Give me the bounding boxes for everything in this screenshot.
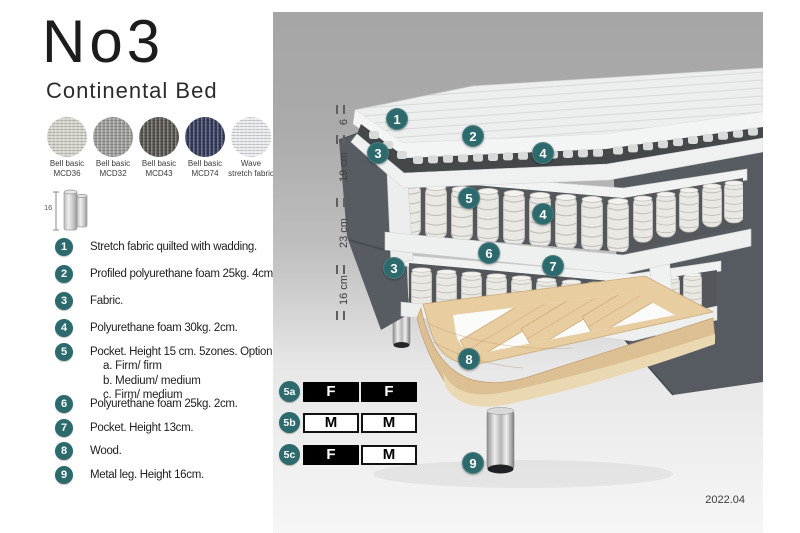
diagram-callout-4: 4 <box>532 142 554 164</box>
swatch-label: Bell basic MCD36 <box>43 159 91 178</box>
product-title: No3 <box>42 10 164 73</box>
firmness-row-5c: 5c F M <box>279 444 417 465</box>
firmness-cell: F <box>303 382 359 402</box>
fabric-swatch <box>185 117 225 157</box>
dimension-tick <box>336 311 338 320</box>
swatch-label-line: Bell basic <box>43 159 91 169</box>
dimension-label-lower-box: 23 cm <box>338 211 350 255</box>
legend-item: 6 Polyurethane foam 25kg. 2cm. <box>55 395 270 413</box>
page: No3 Continental Bed Bell basic MCD36 Bel… <box>0 0 800 533</box>
firmness-cell: M <box>303 413 359 433</box>
swatch-label-line: Bell basic <box>89 159 137 169</box>
firmness-table: F M <box>303 445 417 465</box>
metal-leg-front <box>487 408 514 474</box>
legend-number-badge: 6 <box>55 395 73 413</box>
legend-number-badge: 4 <box>55 319 73 337</box>
legend-number-badge: 3 <box>55 292 73 310</box>
legend-number-badge: 9 <box>55 466 73 484</box>
swatch-label: Bell basic MCD43 <box>135 159 183 178</box>
dimension-label-leg: 16 cm <box>338 268 350 312</box>
firmness-badge: 5b <box>279 412 300 433</box>
fabric-swatch <box>231 117 271 157</box>
leg-cylinders-icon <box>44 188 100 234</box>
fabric-swatch <box>139 117 179 157</box>
firmness-badge: 5c <box>279 444 300 465</box>
swatch-label-line: Wave <box>227 159 275 169</box>
legend-text: Wood. <box>90 442 122 460</box>
swatch-label-line: stretch fabric <box>227 169 275 179</box>
product-subtitle: Continental Bed <box>46 78 218 104</box>
legend-text: Fabric. <box>90 292 123 310</box>
fabric-swatch <box>93 117 133 157</box>
legend-item: 2 Profiled polyurethane foam 25kg. 4cm. <box>55 265 270 283</box>
dimension-label-middle-box: 19 cm <box>338 145 350 189</box>
diagram-panel: 6 19 cm 23 cm 16 cm 1 2 4 3 5 4 6 3 7 8 … <box>273 12 763 533</box>
diagram-callout-6: 6 <box>478 242 500 264</box>
leg-height-value: 16 <box>44 203 52 212</box>
diagram-callout-3: 3 <box>367 142 389 164</box>
swatch-label-line: Bell basic <box>181 159 229 169</box>
firmness-table: F F <box>303 382 417 402</box>
version-date: 2022.04 <box>705 494 745 506</box>
legend-item: 1 Stretch fabric quilted with wadding. <box>55 238 270 256</box>
legend-text: Polyurethane foam 30kg. 2cm. <box>90 319 238 337</box>
swatch-label: Wave stretch fabric <box>227 159 275 178</box>
legend-number-badge: 5 <box>55 343 73 361</box>
swatch-label-line: MCD43 <box>135 169 183 179</box>
firmness-row-5b: 5b M M <box>279 412 417 433</box>
legend-item: 9 Metal leg. Height 16cm. <box>55 466 270 484</box>
swatch-label-line: MCD74 <box>181 169 229 179</box>
diagram-callout-2: 2 <box>462 125 484 147</box>
diagram-callout-1: 1 <box>386 108 408 130</box>
legend-option: a. Firm/ firm <box>103 359 201 374</box>
diagram-callout-5: 5 <box>458 187 480 209</box>
diagram-callout-8: 8 <box>458 348 480 370</box>
firmness-row-5a: 5a F F <box>279 381 417 402</box>
legend-item: 3 Fabric. <box>55 292 270 310</box>
legend-item: 7 Pocket. Height 13cm. <box>55 419 270 437</box>
legend-number-badge: 7 <box>55 419 73 437</box>
diagram-callout-3b: 3 <box>383 257 405 279</box>
swatch-label: Bell basic MCD74 <box>181 159 229 178</box>
legend-text: Polyurethane foam 25kg. 2cm. <box>90 395 238 413</box>
legend-number-badge: 1 <box>55 238 73 256</box>
legend-text: Metal leg. Height 16cm. <box>90 466 204 484</box>
swatch-label: Bell basic MCD32 <box>89 159 137 178</box>
dimension-tick <box>336 198 338 207</box>
swatch-label-line: Bell basic <box>135 159 183 169</box>
leg-height-icon: 16 <box>44 188 100 234</box>
legend-item: 4 Polyurethane foam 30kg. 2cm. <box>55 319 270 337</box>
legend-number-badge: 2 <box>55 265 73 283</box>
fabric-swatch <box>47 117 87 157</box>
firmness-table: M M <box>303 413 417 433</box>
firmness-cell: F <box>303 445 359 465</box>
ground-shadow <box>373 460 673 488</box>
dimension-label-top-mattress: 6 <box>338 100 350 144</box>
dimension-tick <box>343 198 345 207</box>
legend-item: 8 Wood. <box>55 442 270 460</box>
firmness-cell: M <box>361 413 417 433</box>
diagram-callout-9: 9 <box>462 452 484 474</box>
swatch-label-line: MCD36 <box>43 169 91 179</box>
legend-number-badge: 8 <box>55 442 73 460</box>
diagram-callout-7: 7 <box>542 255 564 277</box>
swatch-label-line: MCD32 <box>89 169 137 179</box>
firmness-badge: 5a <box>279 381 300 402</box>
legend-text: Pocket. Height 13cm. <box>90 419 193 437</box>
dimension-tick <box>343 311 345 320</box>
legend-text: Profiled polyurethane foam 25kg. 4cm. <box>90 265 276 283</box>
legend-text: Stretch fabric quilted with wadding. <box>90 238 257 256</box>
firmness-cell: F <box>361 382 417 402</box>
legend-option: b. Medium/ medium <box>103 374 201 389</box>
diagram-callout-4b: 4 <box>532 203 554 225</box>
firmness-cell: M <box>361 445 417 465</box>
